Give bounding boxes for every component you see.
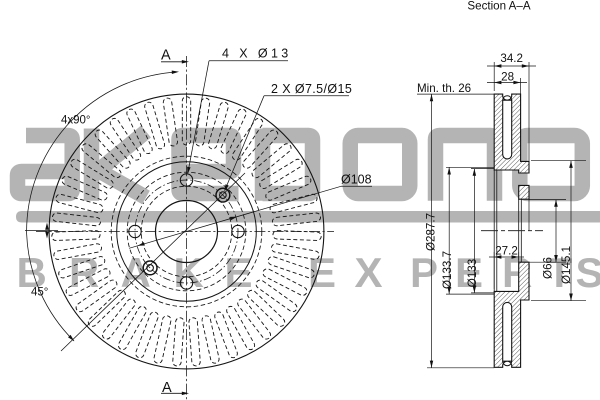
svg-text:2 X Ø7.5/Ø15: 2 X Ø7.5/Ø15 bbox=[271, 82, 352, 96]
svg-text:S: S bbox=[576, 249, 600, 296]
svg-text:Ø133.7: Ø133.7 bbox=[441, 251, 454, 289]
svg-text:Ø66: Ø66 bbox=[542, 257, 555, 279]
svg-text:Ø145.1: Ø145.1 bbox=[560, 246, 573, 284]
svg-text:4 X Ø13: 4 X Ø13 bbox=[222, 47, 292, 61]
svg-text:34.2: 34.2 bbox=[500, 52, 523, 65]
svg-text:45°: 45° bbox=[31, 287, 48, 299]
svg-text:27.2: 27.2 bbox=[495, 245, 518, 258]
svg-text:Min. th. 26: Min. th. 26 bbox=[417, 82, 471, 95]
svg-text:Ø133: Ø133 bbox=[466, 259, 479, 287]
svg-text:E: E bbox=[225, 249, 253, 296]
svg-text:Ø108: Ø108 bbox=[341, 173, 372, 187]
svg-text:A: A bbox=[161, 48, 171, 64]
svg-text:28: 28 bbox=[501, 71, 514, 84]
svg-text:X: X bbox=[355, 249, 383, 296]
svg-text:Ø287.7: Ø287.7 bbox=[424, 213, 437, 251]
svg-text:P: P bbox=[410, 249, 438, 296]
svg-text:4x90°: 4x90° bbox=[61, 115, 91, 127]
svg-text:Section A–A: Section A–A bbox=[467, 0, 530, 13]
